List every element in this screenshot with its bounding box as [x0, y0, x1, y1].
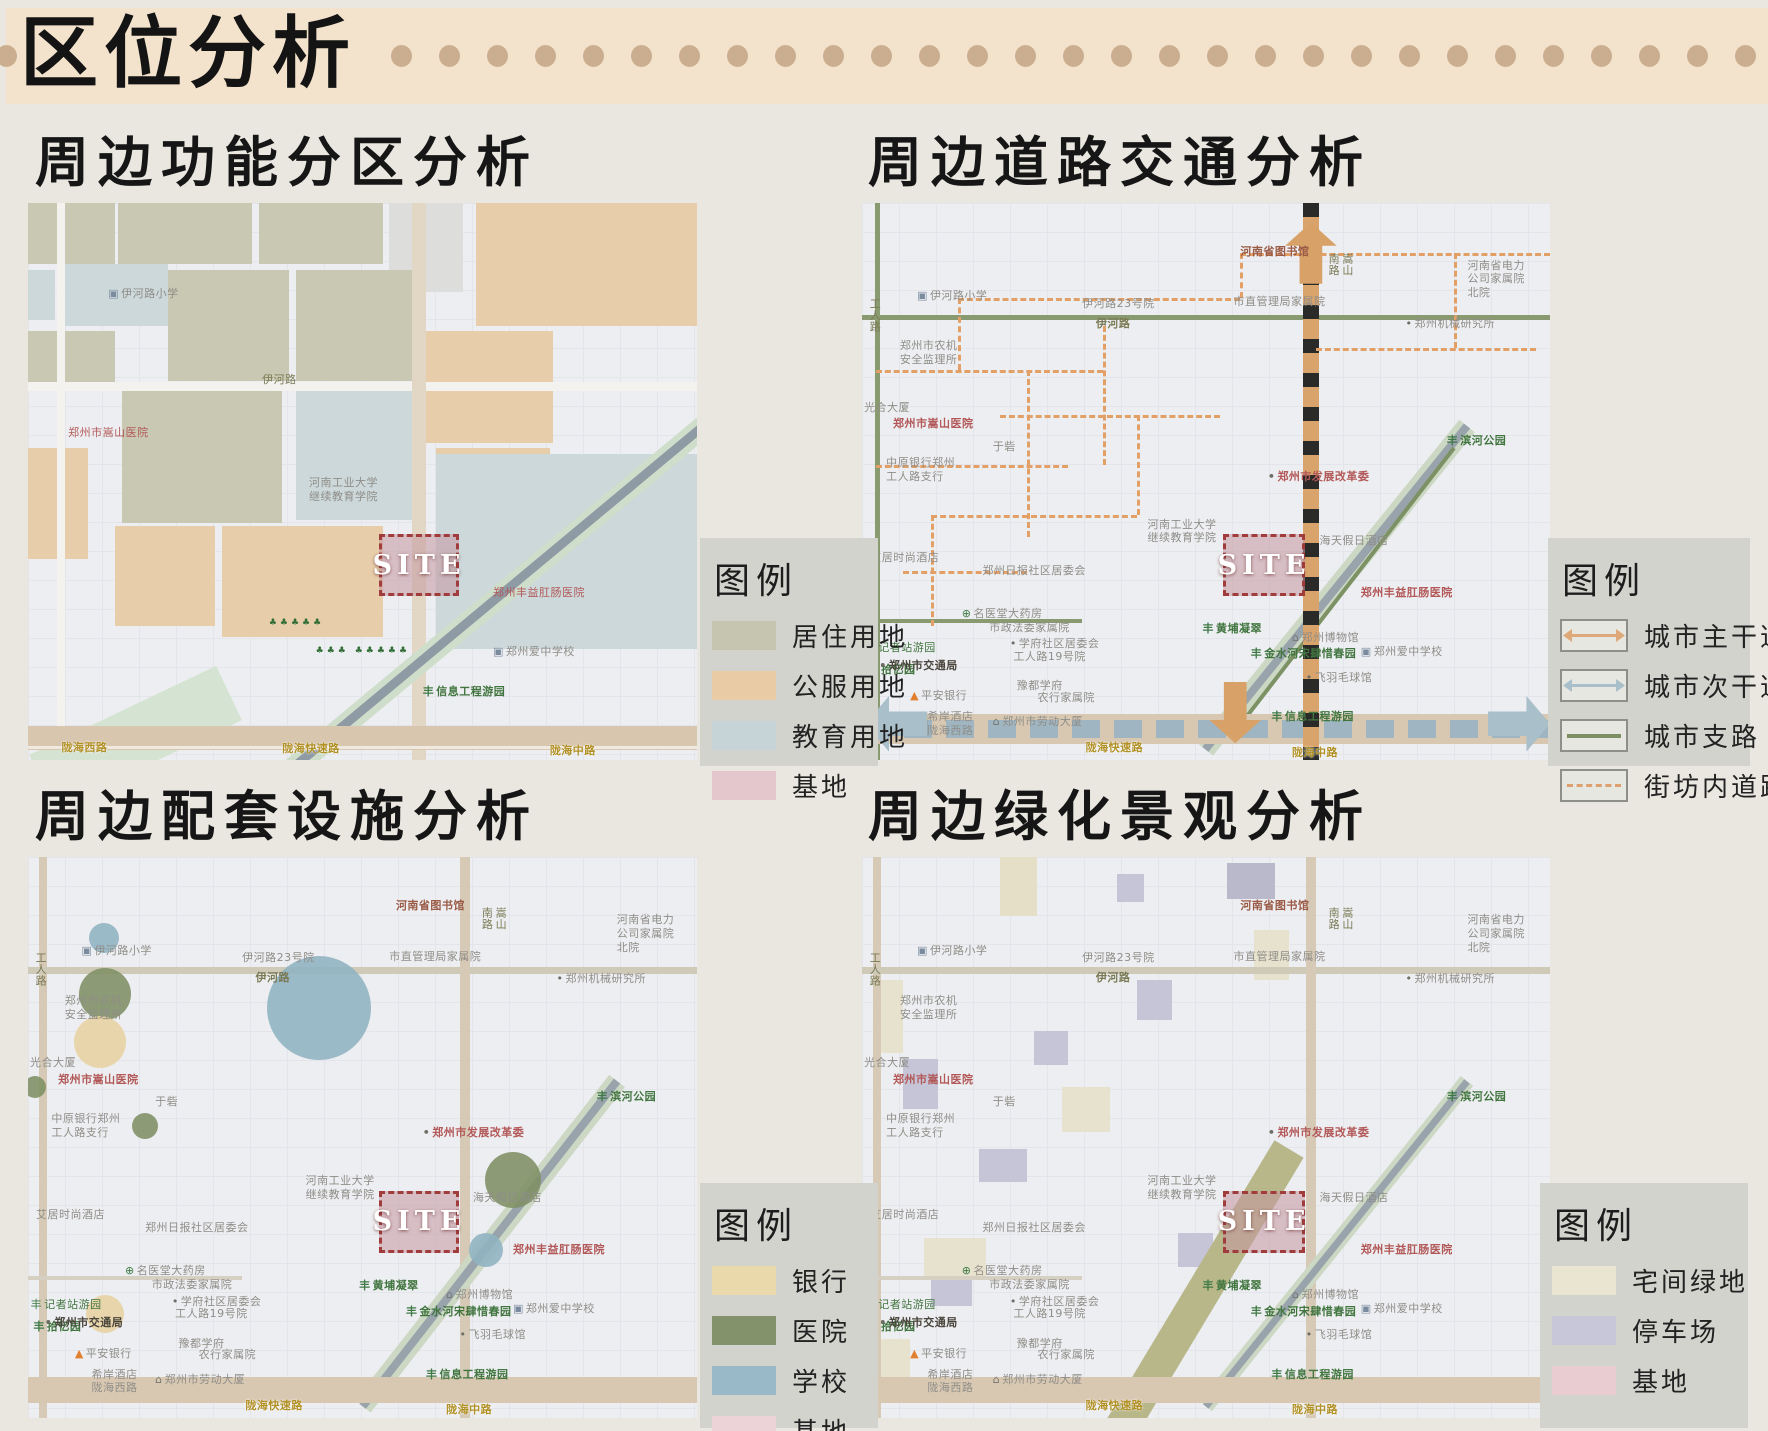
school-icon: ▣: [1361, 1302, 1372, 1316]
med-icon: ⊕: [125, 1264, 135, 1278]
map-label: 艾居时尚酒店: [36, 1208, 105, 1222]
map-label: ▣郑州爱中学校: [1361, 1302, 1443, 1316]
legend-item-label: 银行: [792, 1262, 850, 1299]
alley-dashed-road: [1103, 326, 1106, 465]
dot-icon: [487, 45, 508, 67]
map-label: ▣伊河路小学: [82, 944, 152, 958]
dot-icon: [871, 45, 892, 67]
dot-icon: [1543, 45, 1564, 67]
map-label: 丰滨河公园: [1447, 434, 1507, 448]
legend-item: 居住用地: [712, 617, 866, 654]
tree-icon: 丰: [1271, 710, 1283, 724]
map-label: 陇海中路: [550, 744, 596, 758]
tree-icon: 丰: [31, 1298, 43, 1312]
map-label: 河南省电力 公司家属院 北院: [617, 913, 675, 954]
museum-icon: ⌂: [1292, 631, 1299, 645]
dot-icon: •: [1306, 1328, 1313, 1342]
legend-item-label: 停车场: [1632, 1312, 1719, 1349]
map-label: 工人路: [33, 952, 47, 987]
map-label: 陇海中路: [446, 1403, 492, 1417]
map-label: 艾居时尚酒店: [870, 1208, 939, 1222]
school-icon: ▣: [917, 289, 928, 303]
legend-swatch: [712, 771, 776, 800]
map-label: 郑州丰益肛肠医院: [493, 586, 585, 600]
dot-icon: [1159, 45, 1180, 67]
heading-function-zoning: 周边功能分区分析: [35, 118, 539, 197]
alley-dashed-road: [1454, 253, 1457, 348]
alley-dashed-road: [876, 370, 1103, 373]
dot-icon: [1735, 45, 1756, 67]
legend-facilities: 图例银行医院学校基地: [700, 1183, 878, 1428]
map-road-traffic: 河南省图书馆河南省电力 公司家属院 北院▣伊河路小学市直管理局家属院伊河路23号…: [862, 203, 1550, 760]
map-label: 丰信息工程游园: [423, 685, 506, 699]
map-label: 丰滨河公园: [597, 1090, 657, 1104]
dot-icon: •: [1306, 671, 1313, 685]
map-facilities: 河南省图书馆河南省电力 公司家属院 北院▣伊河路小学市直管理局家属院伊河路23号…: [28, 857, 697, 1418]
school-icon: ▣: [1361, 645, 1372, 659]
map-label: 郑州日报社区居委会: [145, 1221, 249, 1235]
map-label: 市直管理局家属院: [1234, 295, 1326, 309]
museum-icon: ⌂: [993, 1373, 1000, 1387]
site-label: SITE: [373, 550, 466, 581]
map-label: 陇海快速路: [1086, 741, 1144, 755]
map-label: 陇海中路: [1292, 1403, 1338, 1417]
map-label: 陇海快速路: [1086, 1399, 1144, 1413]
map-label: ▣伊河路小学: [917, 944, 987, 958]
legend-title: 图例: [714, 552, 866, 604]
map-label: 丰信息工程游园: [426, 1368, 509, 1382]
map-label: ⌂郑州市劳动大厦: [155, 1373, 245, 1387]
map-label: 于砦: [993, 1095, 1016, 1109]
map-label: 河南省图书馆: [1240, 245, 1309, 259]
dot-icon: [727, 45, 748, 67]
map-label: ♣♣♣ ♣♣♣♣♣: [316, 646, 410, 657]
museum-icon: ⌂: [1292, 1288, 1299, 1302]
map-label: 河南省图书馆: [396, 899, 465, 913]
map-label: 丰黄埔凝翠: [1203, 622, 1263, 636]
tree-icon: 丰: [1251, 1305, 1263, 1319]
map-label: 中原银行郑州 工人路支行: [886, 1112, 955, 1140]
facility-circle-医院: [132, 1113, 158, 1139]
bank-icon: ▲: [910, 1347, 919, 1361]
map-label: 丰滨河公园: [1447, 1090, 1507, 1104]
legend-item-label: 医院: [792, 1312, 850, 1349]
landuse-block: [28, 203, 115, 264]
bank-icon: ▲: [75, 1347, 84, 1361]
map-label: •郑州市交通局: [879, 1316, 958, 1330]
dot-icon: •: [45, 1316, 53, 1330]
map-label: 河南工业大学 继续教育学院: [306, 1174, 375, 1202]
road-symbol-line: [1567, 784, 1621, 787]
map-label: 海天假日酒店: [1320, 534, 1389, 548]
map-label: 嵩山 南路: [1326, 253, 1354, 276]
dot-icon: •: [1406, 972, 1413, 986]
tree-icon: 丰: [426, 1368, 438, 1382]
map-label: 郑州市嵩山医院: [893, 1073, 974, 1087]
landuse-block: [168, 270, 288, 381]
dot-icon: [775, 45, 796, 67]
map-label: 海天假日酒店: [1320, 1191, 1389, 1205]
tree-icon: 丰: [1271, 1368, 1283, 1382]
map-label: 市政法委家属院: [989, 1278, 1070, 1292]
map-label: 陇海中路: [1292, 746, 1338, 760]
site-marker: SITE: [1223, 1191, 1305, 1253]
map-label: ⌂郑州博物馆: [1292, 1288, 1359, 1302]
map-label: 光合大厦: [864, 401, 910, 415]
arrowhead-left-icon: [1563, 629, 1572, 642]
road: [57, 203, 65, 760]
heading-road-traffic: 周边道路交通分析: [868, 118, 1372, 197]
map-label: •郑州市交通局: [45, 1316, 124, 1330]
legend-swatch: [712, 1316, 776, 1345]
dot-icon: [0, 45, 17, 67]
map-label: ♣♣♣♣♣: [269, 618, 324, 629]
map-function-zoning: ▣伊河路小学伊河路郑州市嵩山医院河南工业大学 继续教育学院郑州丰益肛肠医院▣郑州…: [28, 203, 697, 760]
map-label: 农行家属院: [199, 1348, 257, 1362]
legend-swatch: [712, 671, 776, 700]
map-label: 农行家属院: [1037, 1348, 1095, 1362]
map-label: ▲平安银行: [910, 689, 967, 703]
presentation-slide: 区位分析 周边功能分区分析 周边道路交通分析 周边配套设施分析 周边绿化景观分析…: [0, 0, 1768, 1431]
dot-icon: [1687, 45, 1708, 67]
map-label: ▣郑州爱中学校: [513, 1302, 595, 1316]
legend-swatch: [712, 621, 776, 650]
map-label: 郑州市嵩山医院: [68, 426, 149, 440]
legend-item: 学校: [712, 1362, 866, 1399]
tree-icon: 丰: [1447, 1090, 1459, 1104]
area-patch: [1062, 1087, 1110, 1132]
arrowhead-right-icon: [1616, 679, 1625, 692]
arrowhead-right-icon: [1616, 629, 1625, 642]
map-label: 光合大厦: [864, 1056, 910, 1070]
dot-icon: [1447, 45, 1468, 67]
map-label: •郑州市发展改革委: [1268, 470, 1370, 484]
road-symbol-line: [1567, 634, 1621, 637]
map-label: 伊河路: [1096, 971, 1131, 985]
legend-title: 图例: [1554, 1197, 1736, 1249]
map-label: 光合大厦: [30, 1056, 76, 1070]
landuse-block: [28, 270, 55, 320]
legend-item: 城市主干道: [1560, 617, 1738, 654]
dot-icon: [1207, 45, 1228, 67]
map-label: •飞羽毛球馆: [1306, 1328, 1373, 1342]
museum-icon: ⌂: [993, 715, 1000, 729]
map-label: •飞羽毛球馆: [460, 1328, 527, 1342]
legend-swatch: [712, 721, 776, 750]
road-symbol-line: [1567, 734, 1621, 738]
map-label: 工人路: [868, 952, 882, 987]
legend-item-label: 学校: [792, 1362, 850, 1399]
map-label: ⌂郑州博物馆: [446, 1288, 513, 1302]
legend-road-traffic: 图例城市主干道城市次干道城市支路街坊内道路: [1548, 538, 1750, 766]
alley-dashed-road: [931, 515, 1137, 518]
facility-circle-学校: [469, 1233, 503, 1267]
map-label: 河南省电力 公司家属院 北院: [1467, 913, 1525, 954]
legend-road-symbol: [1560, 669, 1628, 702]
map-label: 于砦: [993, 440, 1016, 454]
map-label: 农行家属院: [1037, 691, 1095, 705]
map-label: 郑州市农机 安全监理所: [900, 339, 958, 367]
area-patch: [931, 1278, 972, 1306]
tree-icon: 丰: [1203, 622, 1215, 636]
site-marker: SITE: [379, 1191, 459, 1253]
dot-icon: [1351, 45, 1372, 67]
legend-road-symbol: [1560, 619, 1628, 652]
site-label: SITE: [373, 1206, 466, 1237]
alley-dashed-road: [958, 298, 961, 370]
dot-icon: •: [1268, 470, 1276, 484]
legend-item-label: 基地: [792, 767, 850, 804]
map-label: •郑州机械研究所: [557, 972, 647, 986]
road: [28, 746, 697, 749]
alley-dashed-road: [1000, 415, 1220, 418]
map-label: ▣郑州爱中学校: [493, 645, 575, 659]
area-patch: [1117, 874, 1145, 902]
map-label: 希岸酒店 陇海西路: [92, 1368, 138, 1396]
site-marker: SITE: [379, 534, 459, 596]
tree-icon: 丰: [33, 1320, 45, 1334]
legend-swatch: [712, 1416, 776, 1431]
map-label: 中原银行郑州 工人路支行: [886, 456, 955, 484]
map-label: 丰信息工程游园: [1271, 1368, 1354, 1382]
legend-item: 教育用地: [712, 717, 866, 754]
map-label: 河南省图书馆: [1240, 899, 1309, 913]
map-label: 伊河路23号院: [1082, 951, 1155, 965]
dot-icon: [967, 45, 988, 67]
med-icon: ⊕: [962, 1264, 972, 1278]
landuse-block: [122, 390, 283, 524]
map-label: ▣郑州爱中学校: [1361, 645, 1443, 659]
map-label: 海天假日酒店: [473, 1191, 542, 1205]
title-dots: [391, 45, 1756, 67]
map-label: 郑州丰益肛肠医院: [513, 1243, 605, 1257]
map-landscape: 河南省图书馆河南省电力 公司家属院 北院▣伊河路小学市直管理局家属院伊河路23号…: [862, 857, 1550, 1418]
area-patch: [1000, 857, 1038, 916]
dot-icon: [535, 45, 556, 67]
legend-road-symbol: [1560, 719, 1628, 752]
map-label: 伊河路23号院: [1082, 297, 1155, 311]
area-patch: [1034, 1031, 1068, 1065]
map-label: 伊河路23号院: [242, 951, 315, 965]
map-label: 希岸酒店 陇海西路: [927, 710, 973, 738]
school-icon: ▣: [493, 645, 504, 659]
area-patch: [979, 1149, 1027, 1183]
legend-item: 街坊内道路: [1560, 767, 1738, 804]
map-label: ⊕名医堂大药房: [125, 1264, 206, 1278]
map-label: ⊕名医堂大药房: [962, 607, 1043, 621]
map-label: 艾居时尚酒店: [870, 551, 939, 565]
map-label: 河南省电力 公司家属院 北院: [1467, 259, 1525, 300]
legend-function-zoning: 图例居住用地公服用地教育用地基地: [700, 538, 878, 766]
dot-icon: [1399, 45, 1420, 67]
map-label: 丰金水河宋肆惜春园: [406, 1305, 512, 1319]
page-title: 区位分析: [20, 4, 356, 104]
tree-icon: 丰: [406, 1305, 418, 1319]
map-label: ▲平安银行: [910, 1347, 967, 1361]
map-label: 河南工业大学 继续教育学院: [1148, 1174, 1217, 1202]
area-patch: [1227, 863, 1275, 899]
legend-item-label: 基地: [792, 1412, 850, 1431]
school-icon: ▣: [108, 287, 119, 301]
landuse-block: [296, 270, 416, 381]
map-label: •郑州市发展改革委: [423, 1126, 525, 1140]
dot-icon: •: [423, 1126, 431, 1140]
tree-icon: 丰: [423, 685, 435, 699]
site-marker: SITE: [1223, 534, 1305, 596]
dot-icon: [919, 45, 940, 67]
legend-swatch: [1552, 1316, 1616, 1345]
legend-item: 银行: [712, 1262, 866, 1299]
alley-dashed-road: [1316, 348, 1536, 351]
map-label: 河南工业大学 继续教育学院: [1148, 518, 1217, 546]
road-symbol-line: [1567, 684, 1621, 687]
school-icon: ▣: [917, 944, 928, 958]
dot-icon: [679, 45, 700, 67]
map-label: 郑州市农机 安全监理所: [65, 994, 123, 1022]
map-label: 市政法委家属院: [989, 621, 1070, 635]
map-label: 于砦: [155, 1095, 178, 1109]
road: [28, 382, 697, 391]
landuse-block: [115, 526, 215, 626]
map-label: 郑州日报社区居委会: [982, 1221, 1086, 1235]
map-label: 郑州市嵩山医院: [893, 417, 974, 431]
dot-icon: [1303, 45, 1324, 67]
legend-item-label: 街坊内道路: [1644, 767, 1768, 804]
map-label: 中原银行郑州 工人路支行: [51, 1112, 120, 1140]
dot-icon: •: [557, 972, 564, 986]
dot-icon: [631, 45, 652, 67]
map-label: •郑州市发展改革委: [1268, 1126, 1370, 1140]
map-label: 市政法委家属院: [152, 1278, 233, 1292]
map-label: •飞羽毛球馆: [1306, 671, 1373, 685]
map-label: 工人路19号院: [1013, 650, 1086, 664]
dot-icon: [583, 45, 604, 67]
legend-item-label: 宅间绿地: [1632, 1262, 1748, 1299]
alley-dashed-road: [1027, 370, 1030, 537]
map-label: 伊河路: [262, 373, 297, 387]
map-label: 嵩山 南路: [480, 907, 508, 930]
dot-icon: [1591, 45, 1612, 67]
legend-item: 城市次干道: [1560, 667, 1738, 704]
med-icon: ⊕: [962, 607, 972, 621]
map-label: 丰黄埔凝翠: [359, 1279, 419, 1293]
map-label: 郑州市农机 安全监理所: [900, 994, 958, 1022]
legend-item: 停车场: [1552, 1312, 1736, 1349]
facility-circle-银行: [74, 1016, 126, 1068]
title-band: 区位分析: [6, 8, 1768, 104]
dot-icon: [1255, 45, 1276, 67]
legend-item-label: 基地: [1632, 1362, 1690, 1399]
map-label: ⌂郑州市劳动大厦: [993, 1373, 1083, 1387]
map-label: 丰信息工程游园: [1271, 710, 1354, 724]
legend-item-label: 公服用地: [792, 667, 908, 704]
tree-icon: 丰: [1447, 434, 1459, 448]
map-label: •郑州机械研究所: [1406, 317, 1496, 331]
alley-dashed-road: [931, 515, 934, 626]
map-label: •郑州机械研究所: [1406, 972, 1496, 986]
heading-landscape: 周边绿化景观分析: [868, 772, 1372, 851]
tree-icon: 丰: [359, 1279, 371, 1293]
map-label: 嵩山 南路: [1326, 907, 1354, 930]
dot-icon: •: [879, 1316, 887, 1330]
map-label: 希岸酒店 陇海西路: [927, 1368, 973, 1396]
dot-icon: •: [1268, 1126, 1276, 1140]
map-label: 市直管理局家属院: [389, 950, 481, 964]
arrowhead-left-icon: [1563, 679, 1572, 692]
legend-item: 基地: [712, 767, 866, 804]
dot-icon: [1063, 45, 1084, 67]
legend-swatch: [712, 1266, 776, 1295]
dot-icon: [823, 45, 844, 67]
landuse-block: [259, 203, 383, 264]
school-icon: ▣: [513, 1302, 524, 1316]
museum-icon: ⌂: [446, 1288, 453, 1302]
legend-item-label: 城市支路: [1644, 717, 1760, 754]
site-label: SITE: [1218, 550, 1311, 581]
bank-icon: ▲: [910, 689, 919, 703]
legend-road-symbol: [1560, 769, 1628, 802]
dot-icon: [439, 45, 460, 67]
school-icon: ▣: [82, 944, 93, 958]
map-label: 郑州日报社区居委会: [982, 564, 1086, 578]
map-label: ⌂郑州市劳动大厦: [993, 715, 1083, 729]
legend-item: 医院: [712, 1312, 866, 1349]
dot-icon: [391, 45, 412, 67]
legend-item: 城市支路: [1560, 717, 1738, 754]
dot-icon: •: [1406, 317, 1413, 331]
map-label: 市直管理局家属院: [1234, 950, 1326, 964]
dot-icon: [1111, 45, 1132, 67]
tree-icon: 丰: [597, 1090, 609, 1104]
map-label: 伊河路: [255, 971, 290, 985]
map-label: 郑州市嵩山医院: [58, 1073, 139, 1087]
legend-title: 图例: [1562, 552, 1738, 604]
legend-swatch: [1552, 1366, 1616, 1395]
map-label: 工人路: [868, 298, 882, 333]
legend-item-label: 教育用地: [792, 717, 908, 754]
legend-landscape: 图例宅间绿地停车场基地: [1540, 1183, 1748, 1428]
map-label: 陇海西路: [61, 741, 107, 755]
map-label: ⌂郑州博物馆: [1292, 631, 1359, 645]
map-label: 丰金水河宋肆惜春园: [1251, 647, 1357, 661]
map-label: 陇海快速路: [245, 1399, 303, 1413]
alley-dashed-road: [1240, 253, 1243, 298]
map-label: 伊河路: [1096, 317, 1131, 331]
tree-icon: 丰: [1203, 1279, 1215, 1293]
landuse-block: [476, 203, 697, 326]
map-label: 工人路19号院: [175, 1307, 248, 1321]
legend-item: 公服用地: [712, 667, 866, 704]
map-label: 丰金水河宋肆惜春园: [1251, 1305, 1357, 1319]
map-label: 丰黄埔凝翠: [1203, 1279, 1263, 1293]
legend-item-label: 城市次干道: [1644, 667, 1768, 704]
map-label: ⊕名医堂大药房: [962, 1264, 1043, 1278]
landuse-block: [28, 331, 115, 387]
legend-title: 图例: [714, 1197, 866, 1249]
dot-icon: •: [460, 1328, 467, 1342]
map-label: ▣伊河路小学: [917, 289, 987, 303]
museum-icon: ⌂: [155, 1373, 162, 1387]
map-label: 河南工业大学 继续教育学院: [309, 476, 378, 504]
area-patch: [1137, 980, 1171, 1019]
alley-dashed-road: [1137, 415, 1140, 515]
site-label: SITE: [1218, 1206, 1311, 1237]
heading-facilities: 周边配套设施分析: [35, 772, 539, 851]
tree-icon: 丰: [1251, 647, 1263, 661]
dot-icon: [1015, 45, 1036, 67]
legend-item: 基地: [1552, 1362, 1736, 1399]
legend-item-label: 城市主干道: [1644, 617, 1768, 654]
